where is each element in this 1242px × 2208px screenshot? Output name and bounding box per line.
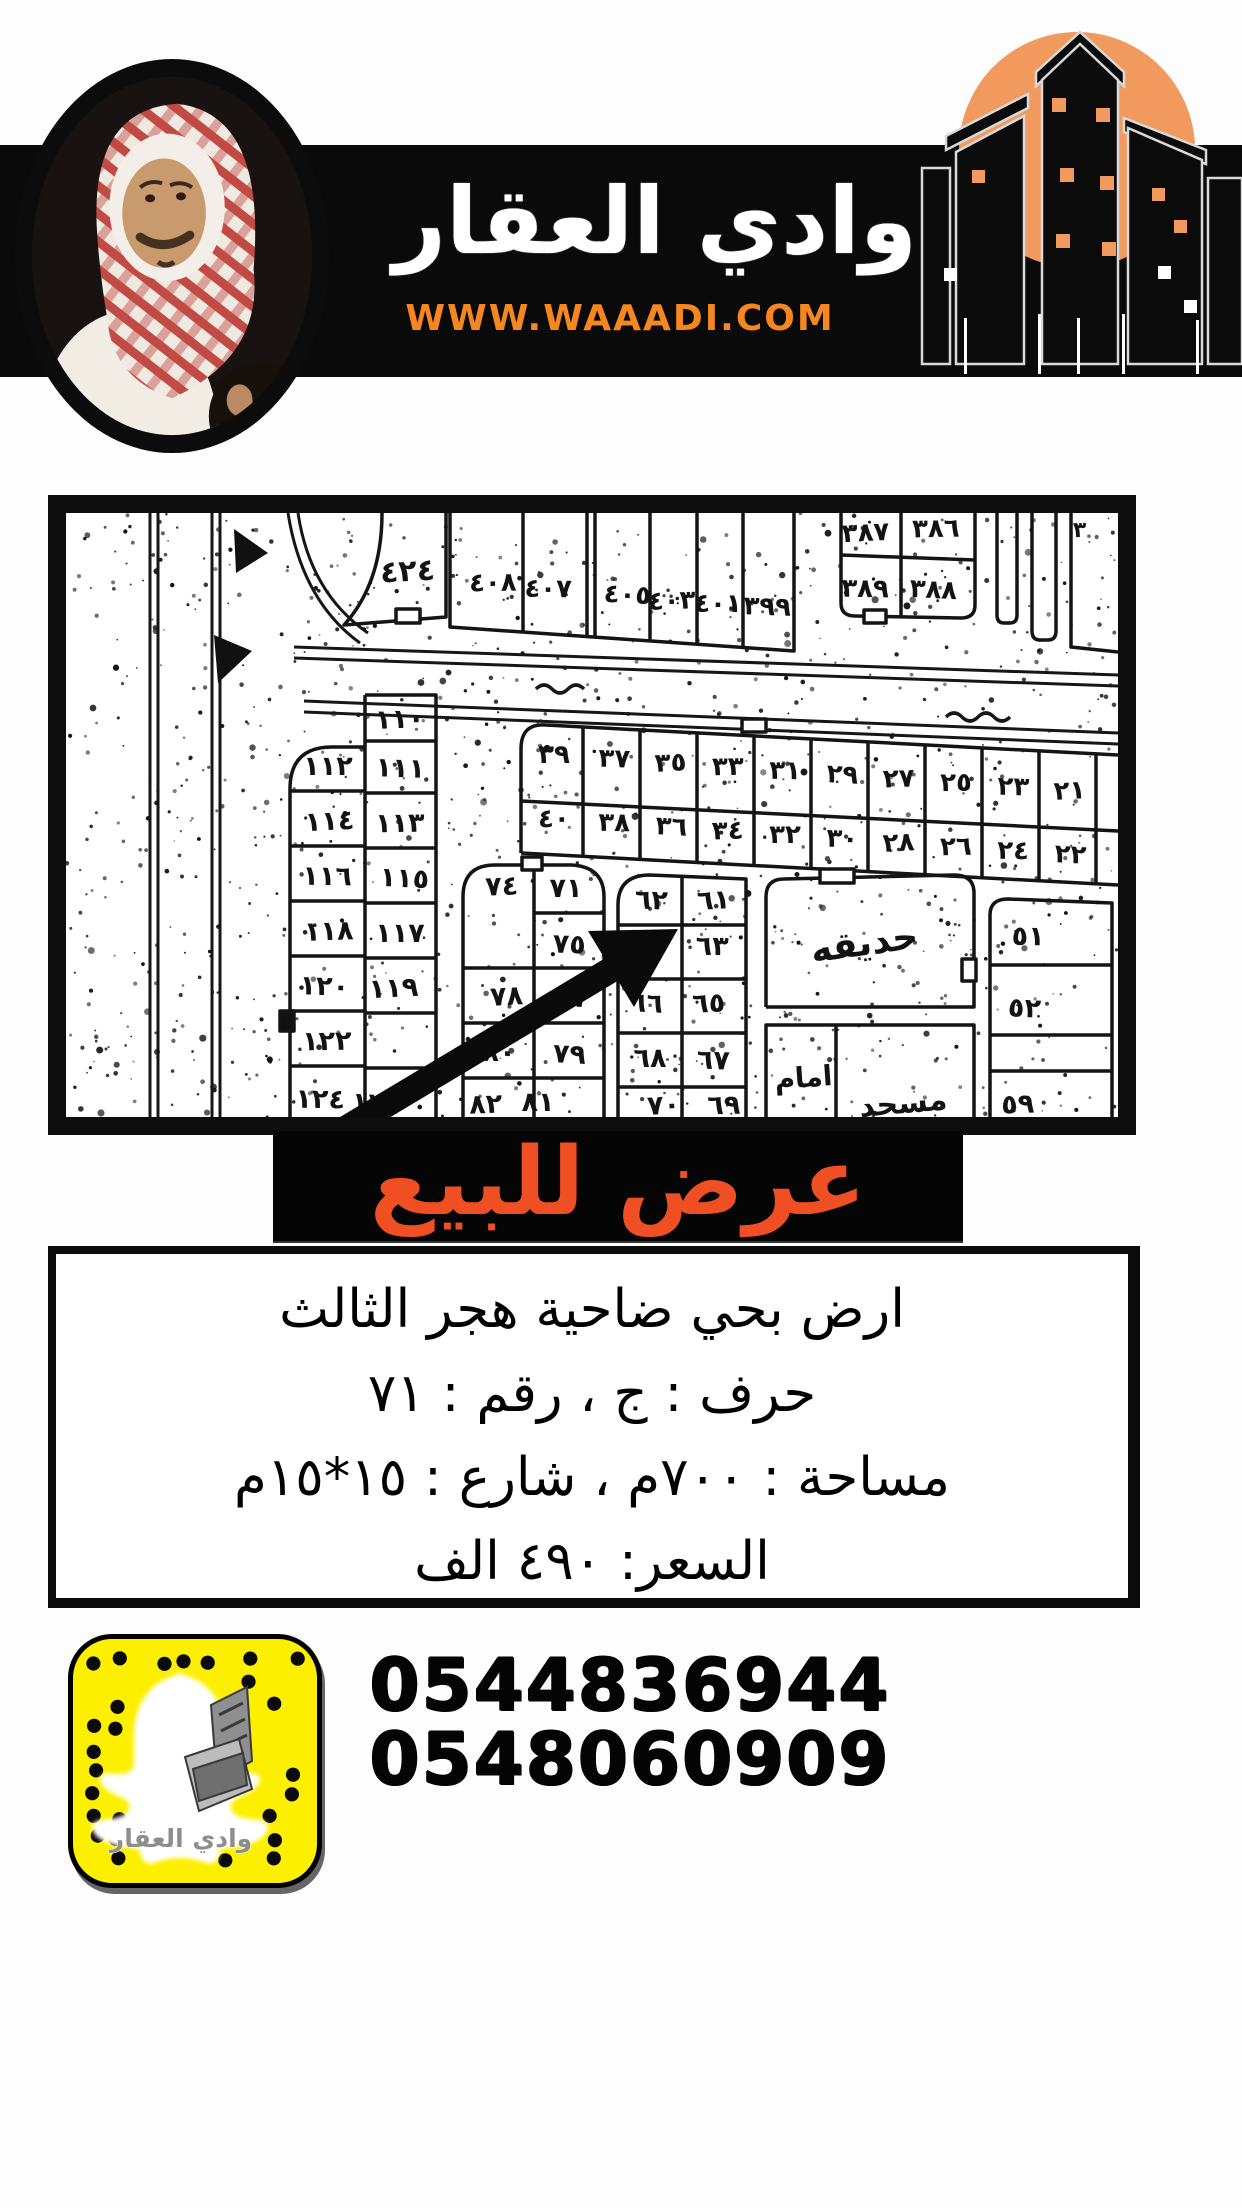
phone-number-2: 0548060909: [340, 1722, 920, 1796]
svg-text:٣٩٩: ٣٩٩: [743, 591, 792, 623]
svg-text:١١٢: ١١٢: [303, 751, 353, 782]
svg-text:٨١: ٨١: [522, 1087, 555, 1117]
svg-text:٧٠: ٧٠: [646, 1089, 681, 1117]
svg-text:٣٢: ٣٢: [769, 820, 801, 850]
svg-text:١٢٢: ١٢٢: [302, 1026, 352, 1058]
svg-text:٦٢: ٦٢: [634, 884, 669, 916]
svg-text:٣٣: ٣٣: [712, 752, 744, 783]
svg-text:٢٤: ٢٤: [997, 836, 1029, 867]
svg-text:٦٥: ٦٥: [692, 987, 726, 1019]
svg-text:١١٦: ١١٦: [302, 861, 352, 893]
brand-website: WWW.WAAADI.COM: [330, 294, 910, 344]
detail-line-plot: حرف : ج ، رقم : ٧١: [56, 1352, 1128, 1436]
sale-banner-title: عرض للبيع: [273, 1131, 963, 1241]
svg-text:٣٨٩: ٣٨٩: [841, 574, 889, 605]
snapcode: وادي العقار: [68, 1634, 322, 1888]
svg-text:٤٢٤: ٤٢٤: [379, 553, 436, 591]
map-marks: [214, 529, 268, 683]
svg-text:٣٨: ٣٨: [598, 808, 630, 839]
svg-text:١١٣: ١١٣: [375, 808, 425, 840]
svg-text:١١٧: ١١٧: [375, 918, 425, 949]
map-box: ٤٢٤٤٠٨٤٠٧٤٠٥٤٠٣٤٠١٣٩٩٣٨٧٣٨٦٣٨٩٣٨٨٣٣٩٣٧٣٥…: [48, 495, 1136, 1135]
svg-text:٣٨٧: ٣٨٧: [841, 517, 890, 549]
svg-text:٤٠٣: ٤٠٣: [647, 585, 696, 617]
svg-text:٧٤: ٧٤: [485, 870, 519, 902]
svg-text:٤٠: ٤٠: [538, 804, 570, 835]
svg-text:حديقه: حديقه: [808, 916, 921, 972]
svg-text:٦٧: ٦٧: [696, 1044, 731, 1076]
svg-text:١١٥: ١١٥: [379, 862, 430, 896]
svg-text:٣٨٨: ٣٨٨: [909, 574, 958, 606]
svg-text:٤٠٧: ٤٠٧: [524, 574, 572, 605]
details-box: ارض بحي ضاحية هجر الثالث حرف : ج ، رقم :…: [48, 1246, 1140, 1608]
svg-text:٧٨: ٧٨: [489, 980, 524, 1013]
plot-map: ٤٢٤٤٠٨٤٠٧٤٠٥٤٠٣٤٠١٣٩٩٣٨٧٣٨٦٣٨٩٣٨٨٣٣٩٣٧٣٥…: [66, 513, 1118, 1117]
brand-title: وادي العقار: [330, 152, 980, 292]
svg-text:٥٩: ٥٩: [1001, 1088, 1035, 1117]
svg-text:١١١: ١١١: [375, 752, 426, 785]
svg-text:١٢٠: ١٢٠: [299, 970, 350, 1003]
svg-text:٦٩: ٦٩: [707, 1090, 741, 1117]
svg-text:امام: امام: [773, 1059, 833, 1096]
building-skyline-icon: [912, 18, 1242, 378]
svg-text:٣٦: ٣٦: [655, 811, 688, 843]
svg-text:١١٤: ١١٤: [304, 805, 355, 839]
svg-text:٣٧: ٣٧: [598, 743, 631, 774]
svg-text:٧١: ٧١: [550, 873, 583, 904]
svg-text:٧٥: ٧٥: [552, 928, 586, 960]
avatar-photo: [12, 58, 332, 456]
svg-text:١١٩: ١١٩: [368, 972, 419, 1006]
phone-number-1: 0544836944: [340, 1648, 920, 1722]
svg-text:مسجد: مسجد: [858, 1082, 949, 1117]
svg-text:٢٢: ٢٢: [1054, 839, 1087, 871]
real-estate-poster: وادي العقار WWW.WAAADI.COM: [0, 0, 1242, 2208]
snapcode-caption: وادي العقار: [108, 1824, 252, 1854]
svg-text:١١٨: ١١٨: [303, 915, 354, 948]
svg-text:٣٠: ٣٠: [826, 823, 859, 854]
detail-line-location: ارض بحي ضاحية هجر الثالث: [56, 1268, 1128, 1352]
svg-text:٢٨: ٢٨: [882, 827, 915, 859]
detail-line-area: مساحة : ٧٠٠م ، شارع : ١٥*١٥م: [56, 1436, 1128, 1520]
svg-text:٤٠٥: ٤٠٥: [603, 579, 652, 611]
svg-text:٢٥: ٢٥: [940, 768, 972, 798]
svg-text:٦٣: ٦٣: [695, 931, 729, 963]
svg-text:٣٤: ٣٤: [711, 815, 744, 846]
sale-banner: عرض للبيع: [273, 1131, 963, 1241]
svg-text:٣: ٣: [1073, 518, 1088, 543]
detail-line-price: السعر: ٤٩٠ الف: [56, 1520, 1128, 1604]
svg-text:٥١: ٥١: [1011, 921, 1045, 953]
svg-text:١٢٤: ١٢٤: [295, 1084, 345, 1116]
svg-text:٤٠٨: ٤٠٨: [469, 568, 517, 599]
svg-text:٦٨: ٦٨: [634, 1043, 667, 1074]
svg-text:٣٩: ٣٩: [538, 740, 570, 770]
svg-text:٥٢: ٥٢: [1007, 992, 1042, 1025]
svg-text:٢١: ٢١: [1053, 775, 1086, 807]
svg-text:١١٠: ١١٠: [374, 703, 425, 736]
svg-text:٨٢: ٨٢: [469, 1088, 504, 1117]
phone-numbers: 0544836944 0548060909: [340, 1648, 920, 1796]
svg-text:٦١: ٦١: [696, 884, 731, 917]
svg-text:٢٩: ٢٩: [826, 759, 859, 791]
svg-text:٧٩: ٧٩: [552, 1038, 587, 1071]
svg-text:٢٦: ٢٦: [940, 832, 972, 863]
svg-text:٣١: ٣١: [769, 756, 801, 787]
svg-text:٣٥: ٣٥: [654, 747, 687, 779]
svg-text:٢٣: ٢٣: [997, 771, 1030, 802]
svg-text:٣٨٦: ٣٨٦: [912, 514, 960, 545]
svg-text:٢٧: ٢٧: [882, 763, 915, 794]
svg-text:٤٠١: ٤٠١: [694, 589, 742, 619]
